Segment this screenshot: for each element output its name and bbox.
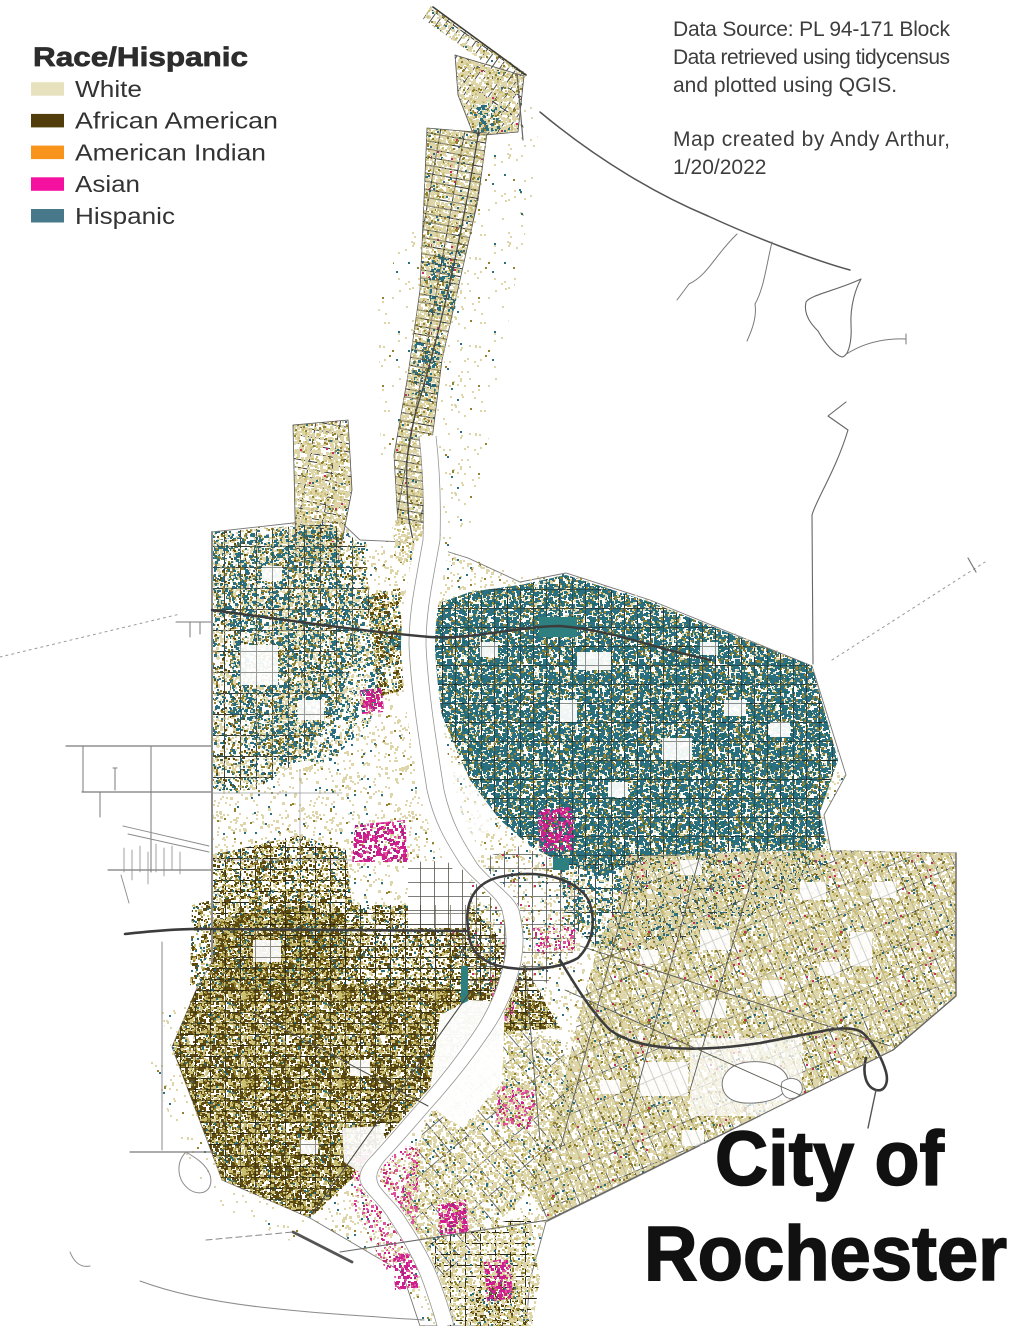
svg-text:Map created by Andy Arthur,: Map created by Andy Arthur, (673, 128, 950, 151)
svg-text:Rochester: Rochester (644, 1211, 1007, 1297)
svg-text:Asian: Asian (75, 171, 140, 197)
svg-text:African American: African American (75, 108, 278, 134)
svg-text:American Indian: American Indian (75, 139, 266, 165)
svg-text:Hispanic: Hispanic (75, 203, 175, 229)
svg-text:City of: City of (715, 1116, 944, 1202)
svg-text:1/20/2022: 1/20/2022 (673, 156, 766, 179)
svg-text:White: White (75, 76, 142, 102)
svg-text:and plotted using QGIS.: and plotted using QGIS. (673, 74, 897, 97)
svg-text:Data retrieved using tidycensu: Data retrieved using tidycensus (673, 46, 950, 69)
svg-text:Race/Hispanic: Race/Hispanic (33, 42, 248, 72)
svg-text:Data Source: PL 94-171 Block: Data Source: PL 94-171 Block (673, 18, 951, 41)
